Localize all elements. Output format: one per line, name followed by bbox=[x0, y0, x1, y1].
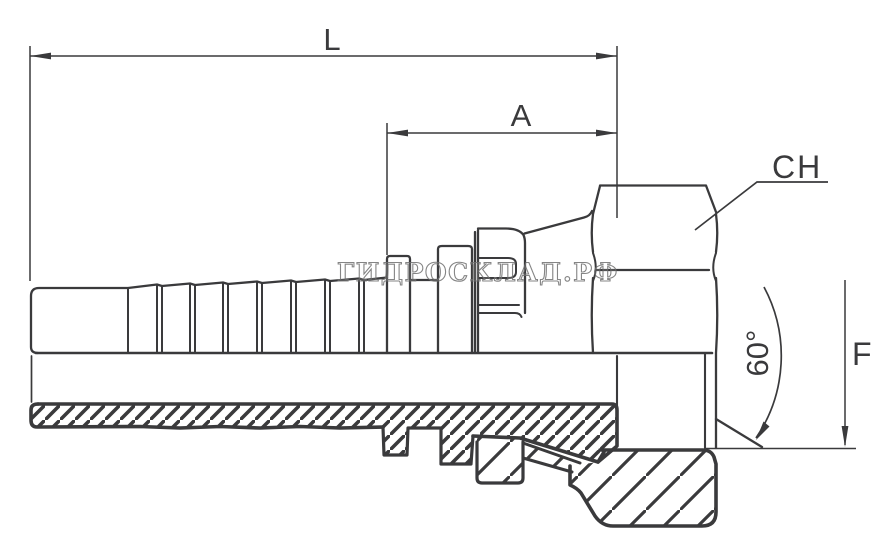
transition-cone bbox=[525, 211, 593, 234]
dimension-A-label: A bbox=[511, 98, 532, 133]
cone-angle-label: 60° bbox=[740, 330, 775, 377]
arrow-cone-angle bbox=[756, 422, 770, 441]
thread-hub-outline bbox=[475, 229, 525, 354]
barb-grooves bbox=[128, 279, 364, 354]
arrow-L-left bbox=[30, 53, 51, 60]
arrow-A-right bbox=[596, 130, 617, 137]
cone-seat-line bbox=[716, 419, 762, 447]
dimension-lines bbox=[30, 46, 856, 449]
dimension-L-label: L bbox=[323, 22, 340, 57]
fitting-drawing-canvas: L A CH 60° F ГИДРОСКЛАД.РФ bbox=[0, 0, 878, 540]
shank-outline bbox=[31, 278, 387, 354]
arrow-A-left bbox=[387, 130, 408, 137]
nut-collar-section-fill bbox=[477, 438, 523, 483]
arrow-F-down bbox=[842, 426, 849, 447]
hex-corner-lens-right bbox=[713, 253, 716, 281]
watermark-text: ГИДРОСКЛАД.РФ bbox=[337, 258, 619, 287]
dimension-arrows bbox=[30, 53, 848, 447]
arrow-L-right bbox=[596, 53, 617, 60]
section-lower bbox=[31, 404, 716, 526]
technical-drawing-page: L A CH 60° F ГИДРОСКЛАД.РФ bbox=[0, 0, 878, 540]
hex-size-label: CH bbox=[772, 149, 822, 185]
thread-size-label: F bbox=[852, 336, 872, 372]
